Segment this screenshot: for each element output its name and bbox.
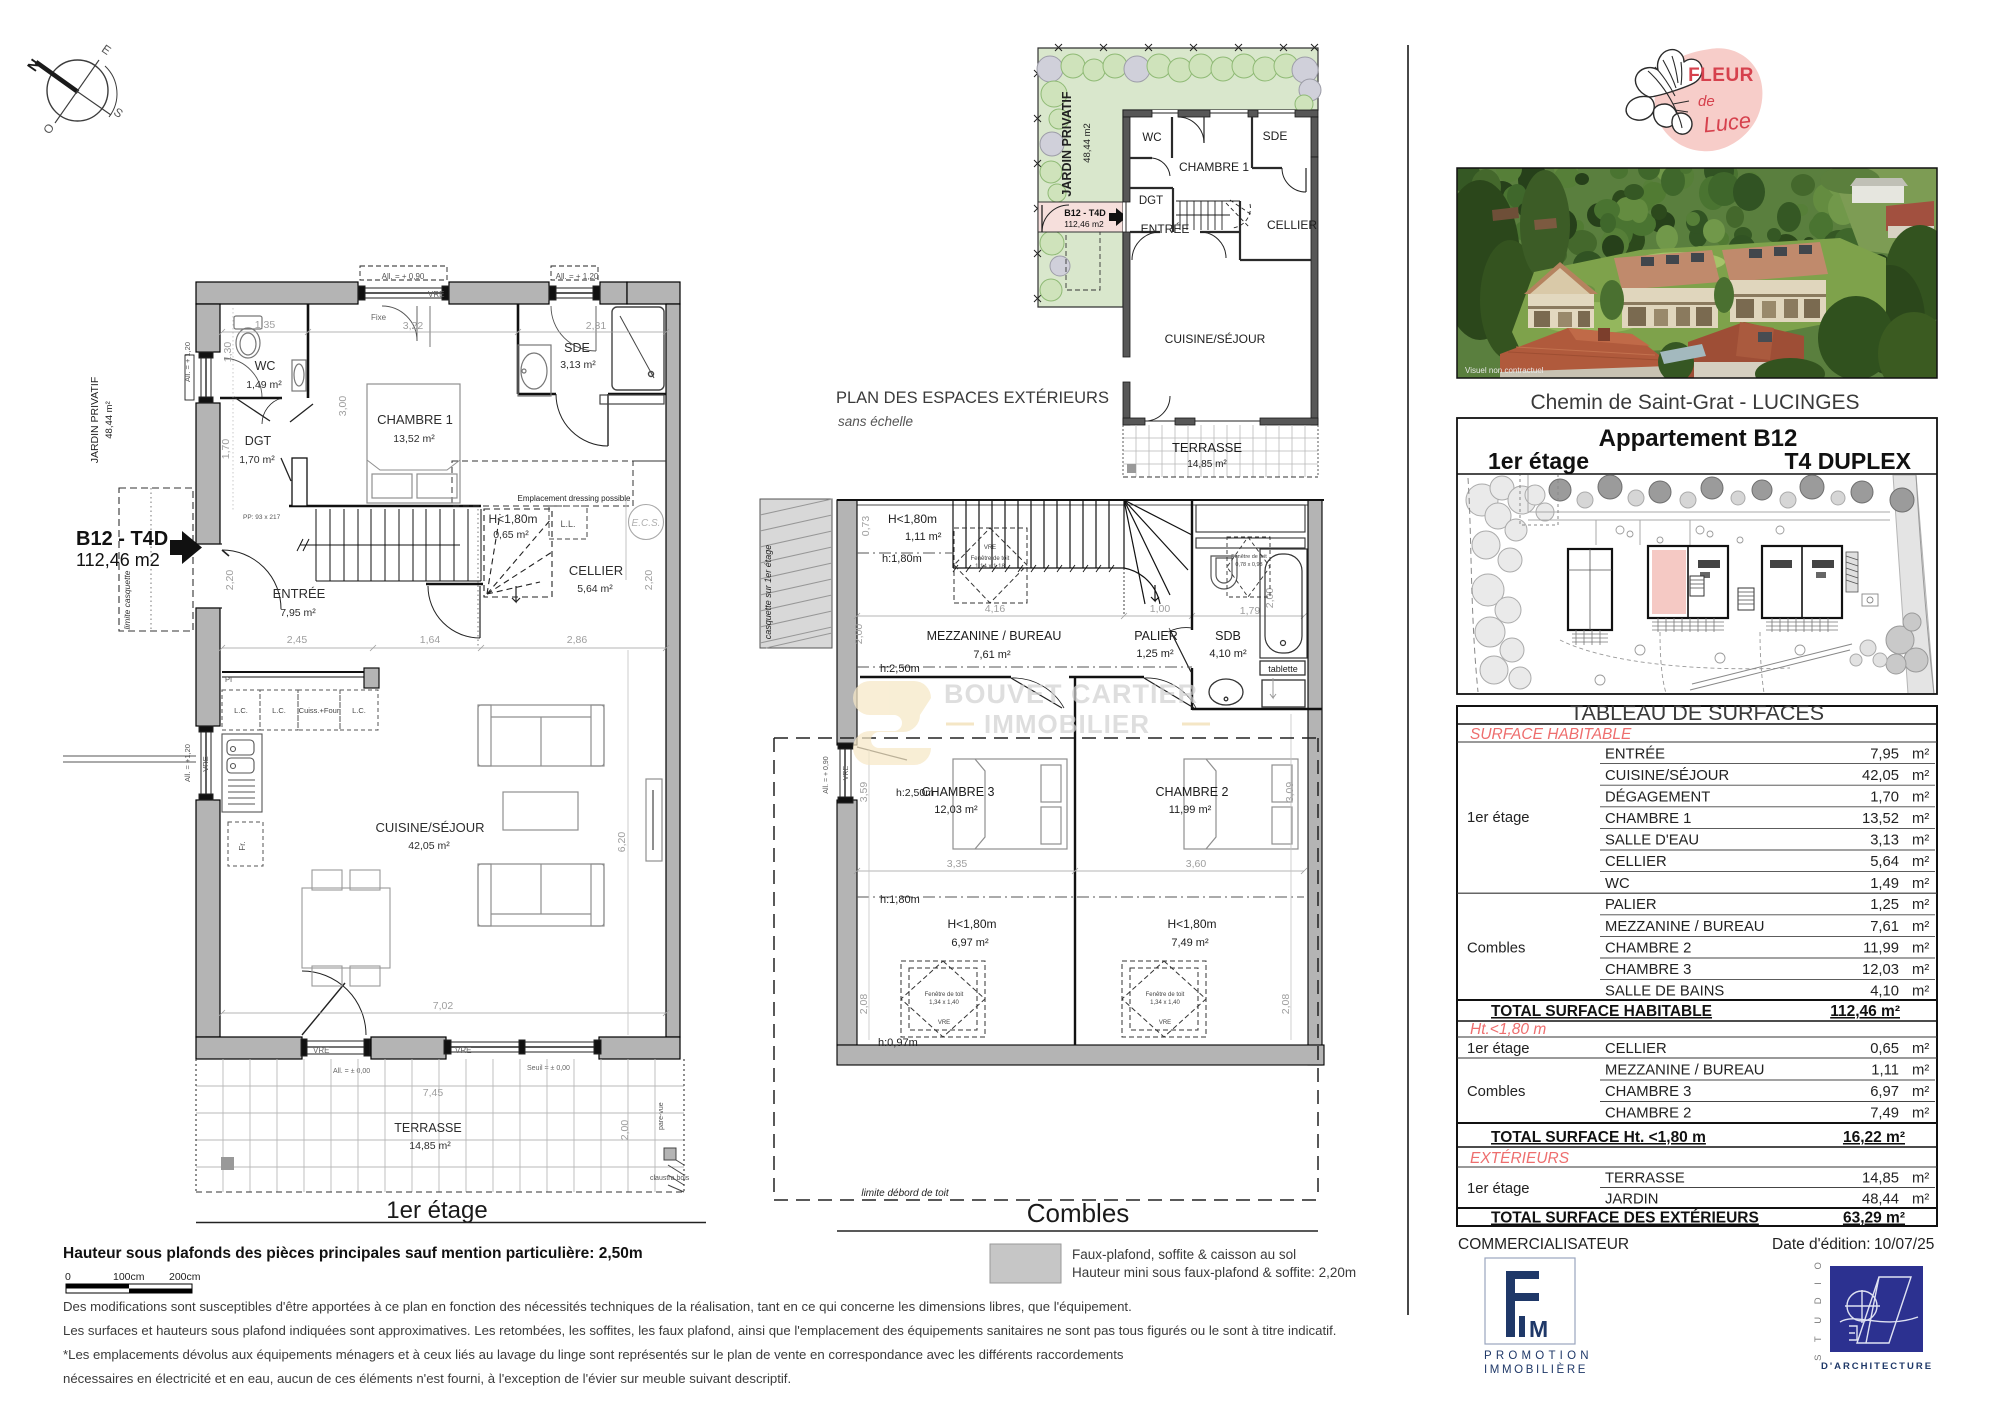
svg-text:12,03 m²: 12,03 m² [934,804,978,816]
svg-text:Combles: Combles [1027,1198,1130,1228]
svg-text:1er étage: 1er étage [1467,1181,1530,1197]
svg-text:112,46 m2: 112,46 m2 [76,550,160,570]
svg-text:5,64 m²: 5,64 m² [577,583,613,595]
svg-text:Combles: Combles [1467,1084,1525,1100]
svg-text:VRE: VRE [938,1020,950,1026]
svg-text:2,08: 2,08 [1280,994,1292,1015]
svg-text:1,25: 1,25 [1870,897,1899,913]
svg-text:TOTAL SURFACE DES EXTÉRIEURS: TOTAL SURFACE DES EXTÉRIEURS [1491,1210,1759,1227]
svg-text:Seuil = ± 0,00: Seuil = ± 0,00 [527,1065,570,1072]
svg-text:FLEUR: FLEUR [1688,65,1754,86]
svg-text:h:2,50m: h:2,50m [880,663,920,675]
svg-text:MEZZANINE / BUREAU: MEZZANINE / BUREAU [1605,919,1765,935]
svg-text:CHAMBRE 3: CHAMBRE 3 [1605,962,1691,978]
svg-text:H<1,80m: H<1,80m [488,512,537,526]
svg-text:CHAMBRE 2: CHAMBRE 2 [1605,941,1691,957]
svg-text:casquette sur 1er étage: casquette sur 1er étage [763,545,773,640]
svg-text:1er étage: 1er étage [1488,448,1589,474]
svg-text:*Les emplacements dévolus aux: *Les emplacements dévolus aux équipement… [63,1347,1124,1362]
svg-text:0,73: 0,73 [860,516,872,537]
svg-text:m²: m² [1912,962,1929,978]
svg-text:TERRASSE: TERRASSE [394,1121,461,1135]
svg-text:Ht.<1,80 m: Ht.<1,80 m [1470,1021,1546,1038]
svg-text:4,10 m²: 4,10 m² [1209,648,1247,660]
svg-text:3,22: 3,22 [403,320,424,332]
svg-text:14,85: 14,85 [1862,1171,1899,1187]
svg-text:DGT: DGT [1139,195,1163,207]
svg-text:H<1,80m: H<1,80m [888,512,937,526]
svg-text:m²: m² [1912,1084,1929,1100]
svg-text:Fixe: Fixe [371,313,387,322]
svg-text:m²: m² [1912,811,1929,827]
svg-text:CELLIER: CELLIER [1605,1041,1667,1057]
svg-text:VRE: VRE [201,756,210,771]
svg-text:JARDIN PRIVATIF: JARDIN PRIVATIF [89,377,101,464]
svg-text:16,22 m²: 16,22 m² [1843,1129,1905,1146]
svg-text:m²: m² [1912,1192,1929,1208]
svg-text:3,60: 3,60 [1186,858,1207,870]
svg-text:Appartement B12: Appartement B12 [1599,425,1798,452]
svg-text:m²: m² [1912,984,1929,1000]
svg-text:1,70: 1,70 [1870,790,1899,806]
svg-text:48,44 m2: 48,44 m2 [1082,123,1093,163]
svg-text:CELLIER: CELLIER [569,563,623,578]
svg-text:200cm: 200cm [169,1271,201,1283]
svg-text:0,65 m²: 0,65 m² [493,529,529,541]
svg-text:m²: m² [1912,790,1929,806]
svg-text:CELLIER: CELLIER [1267,218,1317,232]
svg-text:PALIER: PALIER [1605,897,1657,913]
svg-text:14,85 m²: 14,85 m² [409,1140,451,1152]
svg-text:PALIER: PALIER [1134,629,1178,643]
svg-text:6,97: 6,97 [1870,1084,1899,1100]
svg-text:ENTRÉE: ENTRÉE [1141,221,1190,236]
svg-text:10/07/25: 10/07/25 [1874,1236,1934,1253]
svg-text:1,70: 1,70 [220,439,232,460]
svg-text:All. = + 0,90: All. = + 0,90 [823,756,830,793]
svg-text:WC: WC [1605,876,1630,892]
svg-text:TABLEAU DE SURFACES: TABLEAU DE SURFACES [1570,701,1824,725]
svg-text:14,85 m²: 14,85 m² [1187,459,1227,470]
svg-text:2,08: 2,08 [858,994,870,1015]
svg-text:limite casquette: limite casquette [122,570,132,629]
svg-text:h:1,80m: h:1,80m [882,553,922,565]
svg-text:Cuiss.+Four: Cuiss.+Four [299,706,340,715]
svg-text:O: O [40,121,57,137]
svg-text:m²: m² [1912,897,1929,913]
svg-text:7,61: 7,61 [1870,919,1899,935]
svg-text:0,65: 0,65 [1870,1041,1899,1057]
svg-text:PLAN DES ESPACES EXTÉRIEURS: PLAN DES ESPACES EXTÉRIEURS [836,388,1109,407]
svg-text:12,03: 12,03 [1862,962,1899,978]
svg-text:DÉGAGEMENT: DÉGAGEMENT [1605,789,1710,806]
svg-text:1,00: 1,00 [1150,603,1171,615]
svg-text:5,64: 5,64 [1870,854,1899,870]
svg-text:m²: m² [1912,854,1929,870]
svg-text:VRE: VRE [1159,1020,1171,1026]
svg-text:S: S [111,105,126,121]
svg-text:1,70 m²: 1,70 m² [239,454,275,466]
svg-text:Fenêtre de toit: Fenêtre de toit [1231,554,1267,560]
svg-text:2,20: 2,20 [224,570,236,591]
svg-text:VRE: VRE [843,765,850,780]
svg-text:T4 DUPLEX: T4 DUPLEX [1784,448,1911,474]
svg-text:6,97 m²: 6,97 m² [951,937,989,949]
svg-text:EXTÉRIEURS: EXTÉRIEURS [1470,1150,1570,1167]
svg-text:B12 - T4D: B12 - T4D [76,528,168,550]
svg-text:Faux-plafond, soffite & caisso: Faux-plafond, soffite & caisson au sol [1072,1247,1296,1262]
svg-text:WC: WC [255,359,276,373]
svg-text:6,20: 6,20 [616,832,628,853]
svg-text:1,25 m²: 1,25 m² [1136,648,1174,660]
svg-text:CHAMBRE 3: CHAMBRE 3 [1605,1084,1691,1100]
svg-text:ENTRÉE: ENTRÉE [273,586,326,601]
svg-text:7,49 m²: 7,49 m² [1171,937,1209,949]
svg-text:Emplacement dressing possible: Emplacement dressing possible [518,494,631,503]
svg-text:7,45: 7,45 [423,1087,444,1099]
svg-text:L.L.: L.L. [560,519,575,529]
svg-text:Luce: Luce [1702,108,1752,138]
svg-text:L.C.: L.C. [352,706,366,715]
svg-text:All. = + 1,20: All. = + 1,20 [556,272,599,281]
svg-text:2,45: 2,45 [287,634,308,646]
svg-text:All. = + 0,90: All. = + 0,90 [382,272,425,281]
svg-text:m²: m² [1912,1106,1929,1122]
svg-text:1er étage: 1er étage [386,1197,487,1224]
svg-text:0: 0 [65,1271,71,1283]
svg-text:D'ARCHITECTURE: D'ARCHITECTURE [1821,1361,1933,1372]
svg-text:3,59: 3,59 [858,782,870,803]
svg-text:CHAMBRE 1: CHAMBRE 1 [1605,811,1691,827]
svg-text:ENTRÉE: ENTRÉE [1605,746,1665,763]
svg-text:63,29 m²: 63,29 m² [1843,1210,1905,1227]
svg-text:Fenêtre de toit: Fenêtre de toit [1146,992,1185,998]
svg-text:tablette: tablette [1268,664,1298,674]
svg-text:48,44: 48,44 [1862,1192,1899,1208]
svg-text:CHAMBRE 2: CHAMBRE 2 [1156,785,1229,799]
svg-text:42,05: 42,05 [1862,768,1899,784]
svg-text:CUISINE/SÉJOUR: CUISINE/SÉJOUR [1605,767,1729,784]
svg-text:SDE: SDE [564,341,590,355]
svg-text:m²: m² [1912,941,1929,957]
svg-text:TOTAL SURFACE Ht. <1,80 m: TOTAL SURFACE Ht. <1,80 m [1491,1129,1706,1146]
svg-text:SDB: SDB [1215,629,1241,643]
svg-text:13,52: 13,52 [1862,811,1899,827]
svg-text:m²: m² [1912,768,1929,784]
svg-text:SALLE D'EAU: SALLE D'EAU [1605,833,1699,849]
svg-text:PP: 93 x 217: PP: 93 x 217 [243,514,281,521]
svg-text:112,46 m2: 112,46 m2 [1064,219,1104,229]
svg-text:All. = ± 0,00: All. = ± 0,00 [333,1068,370,1075]
svg-text:TERRASSE: TERRASSE [1605,1171,1685,1187]
svg-text:0,78 x 0,98: 0,78 x 0,98 [1235,562,1262,568]
svg-text:1,14 x 1,18: 1,14 x 1,18 [975,564,1005,570]
svg-text:2,00: 2,00 [853,624,865,645]
svg-text:1,49: 1,49 [1870,876,1899,892]
svg-text:2,00: 2,00 [619,1120,631,1141]
svg-text:1,30: 1,30 [222,342,234,363]
svg-text:1,49 m²: 1,49 m² [246,379,282,391]
svg-text:11,99 m²: 11,99 m² [1169,804,1212,816]
svg-text:m²: m² [1912,1041,1929,1057]
svg-text:COMMERCIALISATEUR: COMMERCIALISATEUR [1458,1236,1629,1253]
svg-text:N: N [24,56,44,75]
svg-text:Chemin de Saint-Grat - LUCINGE: Chemin de Saint-Grat - LUCINGES [1530,391,1859,414]
svg-text:sans échelle: sans échelle [838,414,913,429]
svg-text:Des modifications sont suscept: Des modifications sont susceptibles d'êt… [63,1299,1132,1314]
svg-text:All. = +1,20: All. = +1,20 [183,744,192,782]
svg-text:Fenêtre de toit: Fenêtre de toit [925,992,964,998]
svg-text:CELLIER: CELLIER [1605,854,1667,870]
svg-text:1,64: 1,64 [420,634,441,646]
svg-text:2,00: 2,00 [1264,588,1276,609]
svg-text:m²: m² [1912,833,1929,849]
svg-text:All. = + 1,20: All. = + 1,20 [183,342,192,382]
svg-text:3,35: 3,35 [947,858,968,870]
svg-text:2,20: 2,20 [643,570,655,591]
svg-text:CUISINE/SÉJOUR: CUISINE/SÉJOUR [375,820,484,835]
svg-text:de: de [1698,93,1715,110]
svg-text:MEZZANINE / BUREAU: MEZZANINE / BUREAU [1605,1063,1765,1079]
svg-text:VRE: VRE [428,290,444,299]
svg-text:100cm: 100cm [113,1271,145,1283]
svg-text:VRE: VRE [984,545,996,551]
svg-text:CUISINE/SÉJOUR: CUISINE/SÉJOUR [1165,331,1266,346]
svg-text:IMMOBILIER: IMMOBILIER [984,709,1150,739]
svg-text:E: E [99,42,114,58]
svg-text:MEZZANINE / BUREAU: MEZZANINE / BUREAU [927,629,1062,643]
svg-text:CHAMBRE 3: CHAMBRE 3 [922,785,995,799]
svg-text:Combles: Combles [1467,941,1525,957]
svg-text:3,09: 3,09 [1284,782,1296,803]
svg-text:1er étage: 1er étage [1467,1041,1530,1057]
svg-text:m²: m² [1912,919,1929,935]
svg-text:7,95: 7,95 [1870,747,1899,763]
svg-text:112,46 m²: 112,46 m² [1830,1003,1900,1020]
svg-text:4,16: 4,16 [985,603,1006,615]
svg-text:7,49: 7,49 [1870,1106,1899,1122]
svg-text:1,34 x 1,40: 1,34 x 1,40 [929,1000,959,1006]
svg-text:WC: WC [1142,132,1161,144]
svg-text:B12 - T4D: B12 - T4D [1064,208,1106,218]
svg-text:Fr.: Fr. [238,841,247,850]
svg-text:VRE: VRE [455,1046,471,1055]
svg-text:BOUVET CARTIER: BOUVET CARTIER [944,679,1198,709]
svg-text:m²: m² [1912,1063,1929,1079]
svg-text:M: M [1529,1316,1548,1342]
svg-text:VRE: VRE [313,1046,329,1055]
svg-text:m²: m² [1912,1171,1929,1187]
svg-text:h:1,80m: h:1,80m [880,894,920,906]
svg-text:H<1,80m: H<1,80m [1167,917,1216,931]
svg-text:4,10: 4,10 [1870,984,1899,1000]
svg-text:1er étage: 1er étage [1467,810,1530,826]
svg-text:7,95 m²: 7,95 m² [280,607,316,619]
svg-text:PI: PI [225,675,232,684]
svg-text:limite débord de toit: limite débord de toit [861,1188,949,1199]
svg-text:DGT: DGT [245,434,272,448]
svg-text:JARDIN: JARDIN [1605,1192,1658,1208]
svg-text:Date d'édition:: Date d'édition: [1772,1236,1871,1253]
svg-text:Hauteur mini sous faux-plafond: Hauteur mini sous faux-plafond & soffite… [1072,1265,1356,1280]
svg-text:48,44 m²: 48,44 m² [104,401,115,439]
svg-text:1,11 m²: 1,11 m² [905,531,942,543]
svg-text:m²: m² [1912,747,1929,763]
svg-text:3,13 m²: 3,13 m² [560,359,596,371]
svg-text:2,31: 2,31 [586,320,607,332]
svg-text:42,05 m²: 42,05 m² [408,840,450,852]
svg-text:h:0,97m: h:0,97m [878,1037,918,1049]
svg-text:CHAMBRE 1: CHAMBRE 1 [377,412,453,427]
svg-text:H<1,80m: H<1,80m [947,917,996,931]
svg-text:Hauteur sous plafonds des pièc: Hauteur sous plafonds des pièces princip… [63,1245,643,1262]
svg-text:1,34 x 1,40: 1,34 x 1,40 [1150,1000,1180,1006]
svg-text:nécessaires en électricité et: nécessaires en électricité et en eau, au… [63,1371,791,1386]
svg-text:pare-vue: pare-vue [658,1102,665,1130]
svg-text:TOTAL SURFACE HABITABLE: TOTAL SURFACE HABITABLE [1491,1003,1712,1020]
svg-text:CHAMBRE 2: CHAMBRE 2 [1605,1106,1691,1122]
svg-text:L.C.: L.C. [272,706,286,715]
svg-text:CHAMBRE 1: CHAMBRE 1 [1179,160,1249,174]
svg-text:1,79: 1,79 [1240,605,1261,617]
svg-text:SALLE DE BAINS: SALLE DE BAINS [1605,984,1724,1000]
svg-text:L.C.: L.C. [234,706,248,715]
svg-text:JARDIN PRIVATIF: JARDIN PRIVATIF [1060,91,1074,196]
svg-text:2,86: 2,86 [567,634,588,646]
svg-text:11,99: 11,99 [1863,941,1899,957]
svg-text:Visuel non contractuel: Visuel non contractuel [1465,366,1544,375]
svg-text:Les surfaces et hauteurs sous: Les surfaces et hauteurs sous plafond in… [63,1323,1336,1338]
svg-text:13,52 m²: 13,52 m² [393,433,435,445]
svg-text:7,61 m²: 7,61 m² [973,649,1011,661]
svg-text:E.C.S.: E.C.S. [632,518,661,529]
svg-text:3,00: 3,00 [337,396,349,417]
svg-text:1,11: 1,11 [1871,1063,1899,1079]
svg-text:IMMOBILIÈRE: IMMOBILIÈRE [1484,1363,1588,1376]
svg-text:m²: m² [1912,876,1929,892]
svg-text:1,35: 1,35 [255,319,276,331]
svg-text:TERRASSE: TERRASSE [1172,440,1242,455]
svg-text:SURFACE HABITABLE: SURFACE HABITABLE [1470,726,1632,743]
svg-text:PROMOTION: PROMOTION [1484,1350,1593,1362]
svg-text:S T U D I O: S T U D I O [1813,1257,1824,1361]
svg-text:7,02: 7,02 [433,1000,454,1012]
svg-text:3,13: 3,13 [1870,833,1899,849]
svg-text:Fenêtre de toit: Fenêtre de toit [971,556,1010,562]
svg-text:SDE: SDE [1263,129,1288,143]
